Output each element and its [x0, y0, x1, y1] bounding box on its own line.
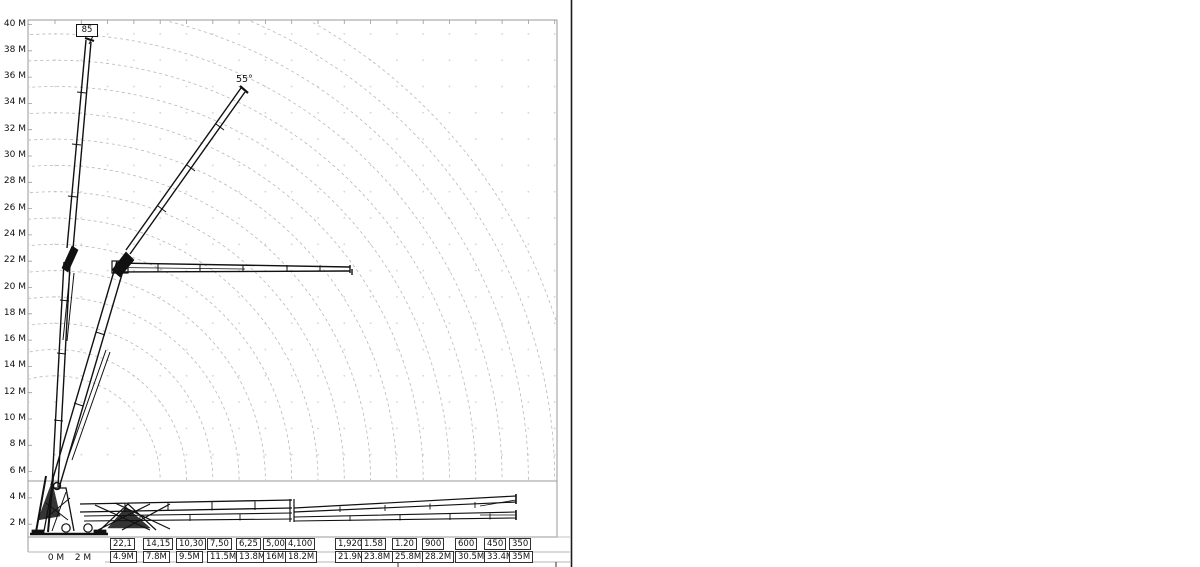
- outreach-value: 7.8M: [143, 551, 170, 563]
- x-axis-label-0m: 0 M: [44, 553, 68, 564]
- outreach-value: 28.2M: [422, 551, 454, 563]
- load-value: 350: [509, 538, 531, 550]
- y-axis-label: 12 M: [0, 387, 26, 398]
- boom-angle-85-label: 85: [76, 24, 98, 37]
- outreach-value: 11.5M: [207, 551, 239, 563]
- crane-stowed: [80, 494, 516, 530]
- y-axis-label: 22 M: [0, 255, 26, 266]
- dot-grid: [29, 21, 556, 480]
- load-table-pair: 22,1 4.9M: [110, 538, 137, 563]
- load-value: 10,30: [176, 538, 206, 550]
- y-axis-label: 32 M: [0, 124, 26, 135]
- load-table-pair: 1.20 25.8M: [392, 538, 424, 563]
- load-table-pair: 900 28.2M: [422, 538, 454, 563]
- load-table-pair: 4,100 18.2M: [285, 538, 317, 563]
- outreach-value: 35M: [509, 551, 533, 563]
- load-table-pair: 14,15 7.8M: [143, 538, 173, 563]
- y-axis-label: 34 M: [0, 97, 26, 108]
- y-axis-label: 38 M: [0, 45, 26, 56]
- y-axis-label: 18 M: [0, 308, 26, 319]
- y-axis-label: 28 M: [0, 176, 26, 187]
- load-value: 600: [455, 538, 477, 550]
- load-table-pair: 1.58 23.8M: [361, 538, 393, 563]
- load-value: 7,50: [207, 538, 232, 550]
- outreach-value: 25.8M: [392, 551, 424, 563]
- boom-angle-55-label: 55°: [236, 74, 253, 85]
- y-axis-label: 20 M: [0, 282, 26, 293]
- y-axis-label: 14 M: [0, 360, 26, 371]
- y-axis-label: 24 M: [0, 229, 26, 240]
- outreach-value: 30.5M: [455, 551, 487, 563]
- outreach-value: 9.5M: [176, 551, 203, 563]
- y-axis-label: 6 M: [0, 466, 26, 477]
- y-axis-label: 4 M: [0, 492, 26, 503]
- y-axis-label: 10 M: [0, 413, 26, 424]
- y-axis-label: 2 M: [0, 518, 26, 529]
- y-axis-label: 36 M: [0, 71, 26, 82]
- y-axis-label: 8 M: [0, 439, 26, 450]
- load-value: 22,1: [110, 538, 135, 550]
- outreach-value: 23.8M: [361, 551, 393, 563]
- y-axis-label: 40 M: [0, 19, 26, 30]
- load-table-pair: 600 30.5M: [455, 538, 487, 563]
- y-axis-label: 26 M: [0, 203, 26, 214]
- load-value: 450: [484, 538, 506, 550]
- outreach-value: 4.9M: [110, 551, 137, 563]
- load-table-pair: 7,50 11.5M: [207, 538, 239, 563]
- load-table-pair: 350 35M: [509, 538, 533, 563]
- outreach-value: 18.2M: [285, 551, 317, 563]
- crane-range-diagram-page: 85 55° 40 M 38 M 36 M 34 M 32 M 30 M 28 …: [0, 0, 1200, 567]
- load-value: 14,15: [143, 538, 173, 550]
- load-value: 6,25: [236, 538, 261, 550]
- load-value: 4,100: [285, 538, 315, 550]
- y-axis-label: 30 M: [0, 150, 26, 161]
- y-axis-label: 16 M: [0, 334, 26, 345]
- load-value: 900: [422, 538, 444, 550]
- crane-diagram-canvas: [0, 0, 1200, 567]
- load-table-pair: 10,30 9.5M: [176, 538, 206, 563]
- load-value: 1.58: [361, 538, 386, 550]
- outreach-value: 16M: [263, 551, 287, 563]
- load-value: 1.20: [392, 538, 417, 550]
- x-axis-label-2m: 2 M: [71, 553, 95, 564]
